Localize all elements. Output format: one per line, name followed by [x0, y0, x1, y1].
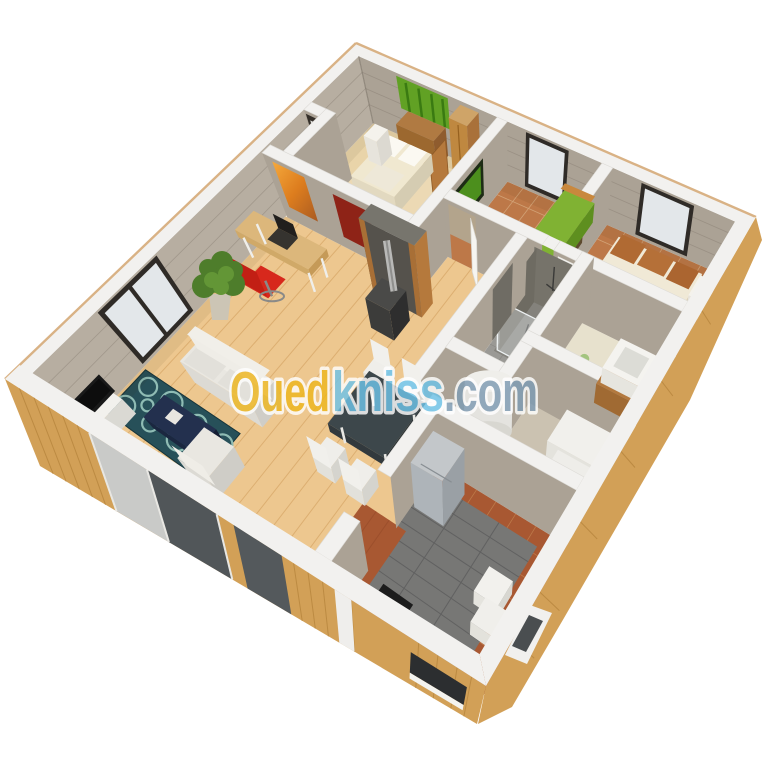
svg-text:kniss: kniss	[332, 360, 444, 424]
svg-text:Oued: Oued	[230, 360, 330, 424]
svg-text:.com: .com	[444, 360, 538, 424]
